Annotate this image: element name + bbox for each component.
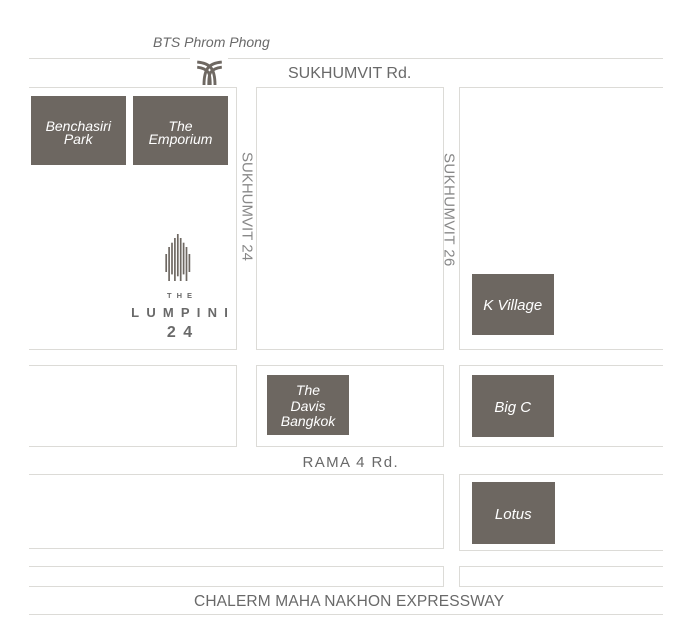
svg-text:SUKHUMVIT 24: SUKHUMVIT 24 (239, 152, 256, 261)
svg-text:SUKHUMVIT 26: SUKHUMVIT 26 (441, 153, 458, 267)
